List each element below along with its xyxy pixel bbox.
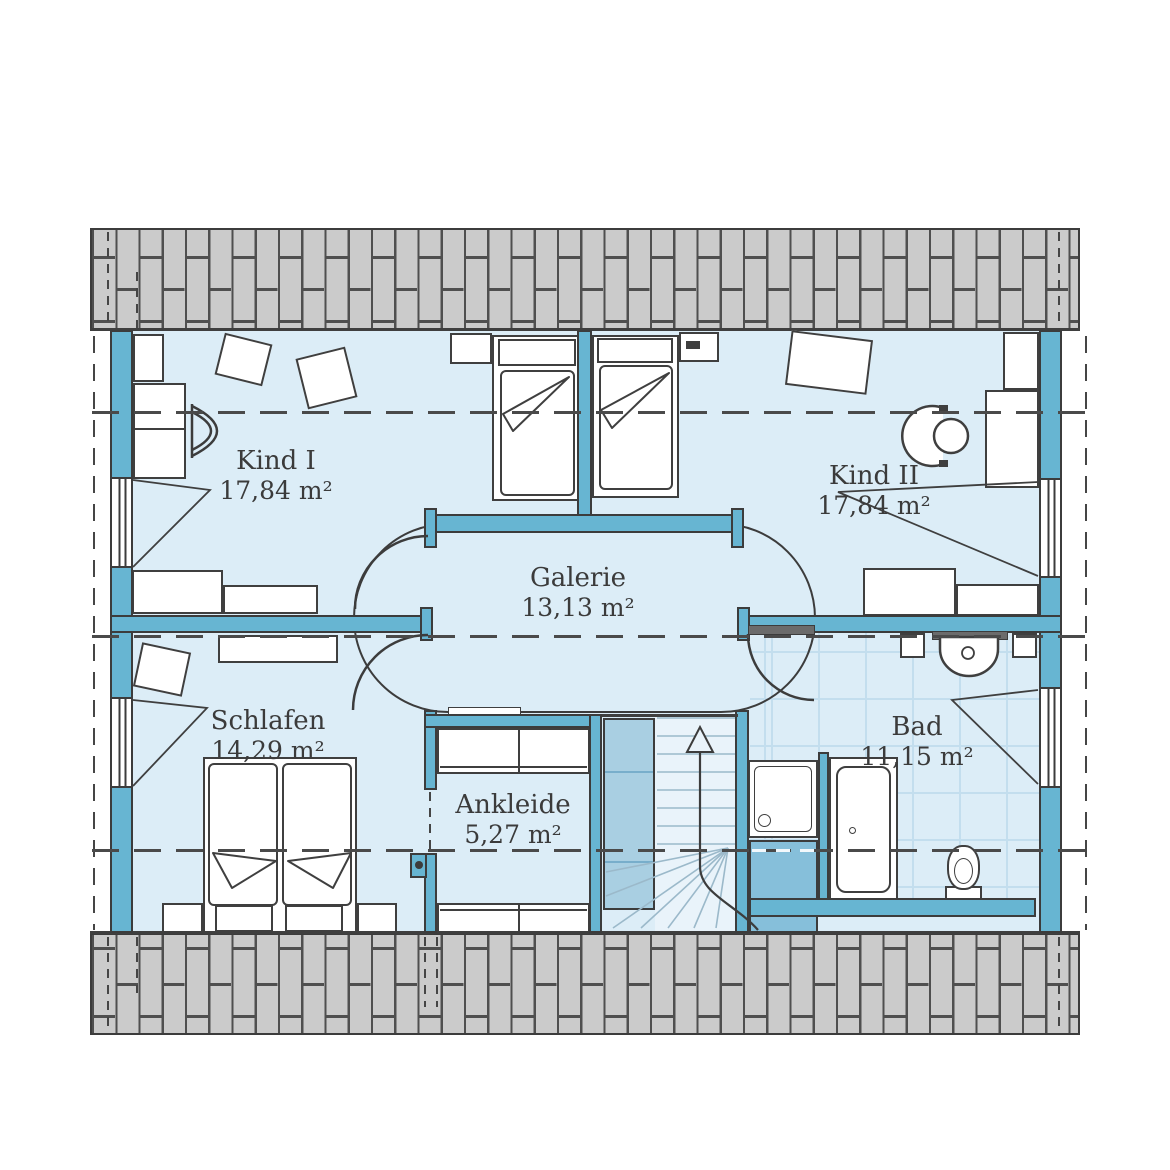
room-area: 5,27 m² <box>413 820 613 849</box>
room-area: 17,84 m² <box>176 476 376 505</box>
room-label-bad: Bad 11,15 m² <box>817 713 1017 771</box>
blanket-fold <box>601 373 669 428</box>
room-area: 11,15 m² <box>817 742 1017 771</box>
desk-chair <box>902 405 968 467</box>
washbasin <box>940 637 998 676</box>
stair-arrow-head <box>687 727 713 752</box>
room-label-galerie: Galerie 13,13 m² <box>478 564 678 622</box>
room-label-ankleide: Ankleide 5,27 m² <box>413 791 613 849</box>
room-name: Galerie <box>478 564 678 593</box>
room-label-kind2: Kind II 17,84 m² <box>774 462 974 520</box>
door-arc-kind1 <box>355 536 428 609</box>
knee-wall-dash-on-block <box>752 849 816 852</box>
room-name: Kind II <box>774 462 974 491</box>
knee-wall-dash-upper <box>92 411 1090 414</box>
blanket-fold <box>503 377 569 431</box>
room-name: Schlafen <box>168 707 368 736</box>
door-arc-bad <box>748 634 814 700</box>
knee-wall-dash-lower <box>92 849 1090 852</box>
stair-arrow <box>700 750 758 930</box>
room-label-schlafen: Schlafen 14,29 m² <box>168 707 368 765</box>
room-name: Ankleide <box>413 791 613 820</box>
blanket-fold <box>213 853 276 888</box>
door-arc-schlafen <box>353 635 428 710</box>
room-name: Bad <box>817 713 1017 742</box>
room-area: 14,29 m² <box>168 736 368 765</box>
knee-wall-dash-middle <box>92 635 1090 638</box>
room-area: 17,84 m² <box>774 491 974 520</box>
room-label-kind1: Kind I 17,84 m² <box>176 447 376 505</box>
floor-plan: Kind I 17,84 m² Kind II 17,84 m² Galerie… <box>0 0 1170 1170</box>
room-name: Kind I <box>176 447 376 476</box>
blanket-fold <box>288 853 351 888</box>
room-area: 13,13 m² <box>478 593 678 622</box>
